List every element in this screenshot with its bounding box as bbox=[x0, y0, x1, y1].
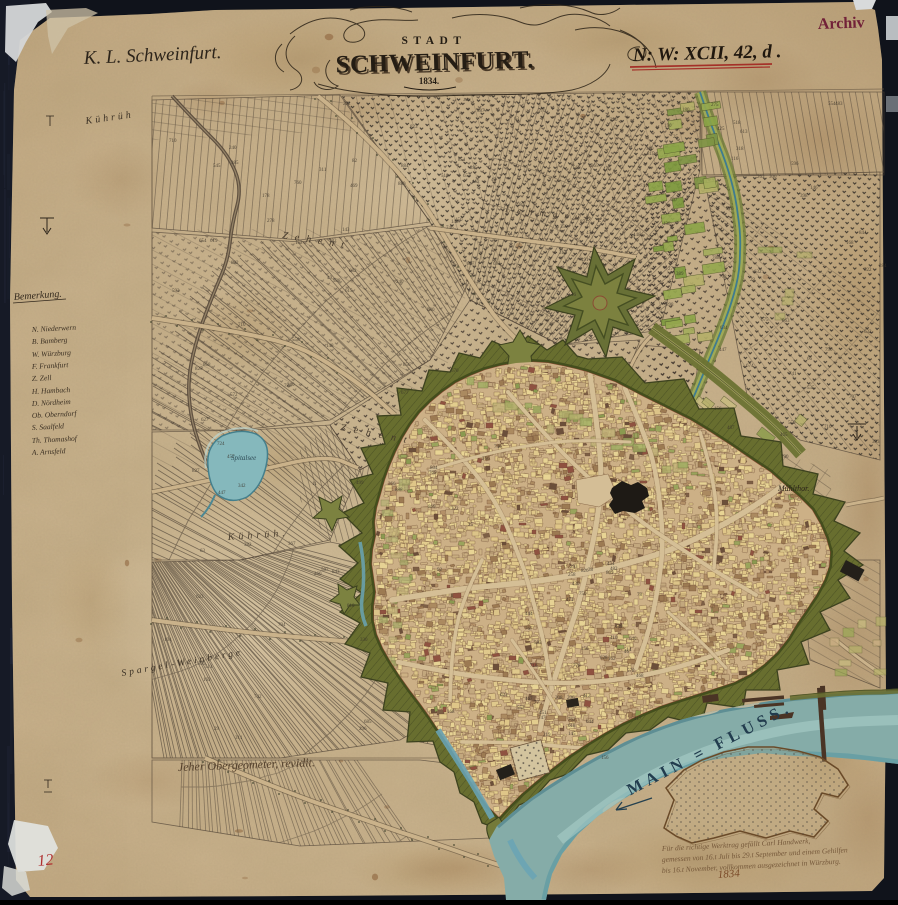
svg-text:Spitalsee: Spitalsee bbox=[231, 454, 256, 462]
svg-text:880: 880 bbox=[398, 182, 406, 187]
svg-text:680: 680 bbox=[427, 308, 435, 313]
svg-text:143: 143 bbox=[342, 228, 350, 233]
svg-text:449: 449 bbox=[615, 625, 623, 630]
svg-text:897: 897 bbox=[467, 262, 475, 267]
svg-text:263: 263 bbox=[757, 175, 765, 180]
svg-text:790: 790 bbox=[825, 348, 833, 353]
svg-text:856: 856 bbox=[403, 363, 411, 368]
svg-text:STADT: STADT bbox=[402, 35, 467, 47]
svg-text:398: 398 bbox=[800, 194, 808, 199]
svg-text:180: 180 bbox=[682, 108, 690, 113]
svg-text:469: 469 bbox=[350, 184, 358, 189]
svg-text:674: 674 bbox=[746, 364, 754, 369]
svg-text:412: 412 bbox=[583, 694, 591, 699]
svg-text:38: 38 bbox=[588, 568, 594, 573]
svg-text:293: 293 bbox=[570, 565, 578, 570]
svg-text:208: 208 bbox=[555, 696, 563, 701]
svg-text:462: 462 bbox=[472, 180, 480, 185]
svg-text:63: 63 bbox=[514, 117, 520, 122]
svg-text:741: 741 bbox=[640, 184, 648, 189]
svg-text:559: 559 bbox=[788, 421, 796, 426]
svg-text:78: 78 bbox=[430, 647, 436, 652]
svg-text:Archiv: Archiv bbox=[818, 14, 865, 33]
svg-text:618: 618 bbox=[568, 724, 576, 729]
svg-text:623: 623 bbox=[500, 693, 508, 698]
svg-text:593: 593 bbox=[172, 289, 180, 294]
svg-text:587: 587 bbox=[321, 568, 329, 573]
svg-text:572: 572 bbox=[230, 393, 238, 398]
svg-text:322: 322 bbox=[451, 507, 459, 512]
svg-text:827: 827 bbox=[192, 469, 200, 474]
svg-text:750: 750 bbox=[579, 592, 587, 597]
svg-text:387: 387 bbox=[477, 109, 485, 114]
svg-text:685: 685 bbox=[364, 720, 372, 725]
svg-text:152: 152 bbox=[295, 241, 303, 246]
svg-text:Mühlthor.: Mühlthor. bbox=[777, 484, 809, 493]
svg-text:156: 156 bbox=[714, 407, 722, 412]
svg-text:809: 809 bbox=[606, 571, 614, 576]
svg-text:417: 417 bbox=[634, 717, 642, 722]
svg-text:23: 23 bbox=[750, 278, 756, 283]
svg-text:318: 318 bbox=[736, 147, 744, 152]
svg-text:710: 710 bbox=[824, 425, 832, 430]
svg-text:553: 553 bbox=[517, 706, 525, 711]
svg-text:367: 367 bbox=[288, 542, 296, 547]
svg-text:863: 863 bbox=[782, 319, 790, 324]
svg-text:285: 285 bbox=[470, 166, 478, 171]
svg-text:296: 296 bbox=[359, 727, 367, 732]
svg-text:778: 778 bbox=[719, 275, 727, 280]
svg-text:138: 138 bbox=[663, 222, 671, 227]
svg-text:12: 12 bbox=[37, 851, 55, 870]
svg-text:156: 156 bbox=[601, 756, 609, 761]
svg-text:447: 447 bbox=[218, 491, 226, 496]
svg-text:S. Saalfeld: S. Saalfeld bbox=[32, 421, 65, 432]
svg-text:92: 92 bbox=[437, 568, 443, 573]
svg-text:545: 545 bbox=[213, 164, 221, 169]
svg-text:14: 14 bbox=[630, 235, 636, 240]
svg-text:49: 49 bbox=[327, 276, 333, 281]
svg-text:425: 425 bbox=[717, 127, 725, 132]
svg-text:854: 854 bbox=[580, 220, 588, 225]
svg-text:430: 430 bbox=[572, 582, 580, 587]
svg-text:724: 724 bbox=[217, 442, 225, 447]
svg-text:150: 150 bbox=[664, 124, 672, 129]
svg-text:101: 101 bbox=[164, 638, 172, 643]
svg-text:330: 330 bbox=[360, 638, 368, 643]
svg-text:116: 116 bbox=[731, 157, 739, 162]
svg-text:230: 230 bbox=[546, 287, 554, 292]
svg-text:168: 168 bbox=[447, 710, 455, 715]
svg-text:1834: 1834 bbox=[717, 867, 740, 881]
svg-text:393: 393 bbox=[872, 440, 880, 445]
svg-text:613: 613 bbox=[740, 130, 748, 135]
svg-text:SCHWEINFURT.: SCHWEINFURT. bbox=[335, 46, 534, 78]
svg-text:710: 710 bbox=[238, 323, 246, 328]
svg-text:760: 760 bbox=[294, 181, 302, 186]
svg-text:219: 219 bbox=[543, 733, 551, 738]
svg-text:465: 465 bbox=[780, 433, 788, 438]
svg-text:634: 634 bbox=[720, 326, 728, 331]
svg-text:583: 583 bbox=[534, 641, 542, 646]
svg-text:628: 628 bbox=[600, 656, 608, 661]
svg-text:266: 266 bbox=[482, 457, 490, 462]
svg-text:410: 410 bbox=[610, 636, 618, 641]
svg-text:284: 284 bbox=[879, 264, 887, 269]
svg-text:815: 815 bbox=[647, 152, 655, 157]
svg-text:454: 454 bbox=[586, 231, 594, 236]
svg-text:578: 578 bbox=[627, 669, 635, 674]
svg-text:769: 769 bbox=[429, 471, 437, 476]
svg-text:328: 328 bbox=[463, 98, 471, 103]
svg-text:Z. Zell: Z. Zell bbox=[32, 373, 52, 383]
svg-text:1834.: 1834. bbox=[419, 76, 439, 86]
svg-text:385: 385 bbox=[231, 161, 239, 166]
svg-text:240: 240 bbox=[396, 280, 404, 285]
svg-text:740: 740 bbox=[494, 445, 502, 450]
svg-text:N: W: XCII, 42, d .: N: W: XCII, 42, d . bbox=[632, 41, 782, 66]
svg-text:788: 788 bbox=[284, 384, 292, 389]
svg-text:499: 499 bbox=[356, 481, 364, 486]
svg-text:707: 707 bbox=[849, 395, 857, 400]
svg-text:692: 692 bbox=[493, 262, 501, 267]
svg-text:80: 80 bbox=[519, 203, 525, 208]
svg-text:710: 710 bbox=[169, 139, 177, 144]
svg-text:29: 29 bbox=[214, 727, 220, 732]
svg-text:457: 457 bbox=[227, 455, 235, 460]
svg-text:746: 746 bbox=[446, 226, 454, 231]
svg-text:747: 747 bbox=[538, 716, 546, 721]
svg-text:11: 11 bbox=[312, 482, 317, 487]
svg-text:366: 366 bbox=[388, 482, 396, 487]
svg-text:810: 810 bbox=[347, 604, 355, 609]
svg-text:644: 644 bbox=[586, 720, 594, 725]
svg-text:619: 619 bbox=[210, 239, 218, 244]
svg-text:146: 146 bbox=[810, 186, 818, 191]
svg-text:823: 823 bbox=[410, 125, 418, 130]
svg-text:25: 25 bbox=[468, 523, 474, 528]
svg-text:274: 274 bbox=[668, 267, 676, 272]
svg-text:46: 46 bbox=[624, 650, 630, 655]
svg-text:145: 145 bbox=[568, 732, 576, 737]
svg-text:742: 742 bbox=[254, 695, 262, 700]
svg-text:374: 374 bbox=[505, 232, 513, 237]
svg-text:260: 260 bbox=[314, 572, 322, 577]
svg-text:682: 682 bbox=[349, 269, 357, 274]
svg-text:597: 597 bbox=[670, 198, 678, 203]
svg-text:535: 535 bbox=[807, 386, 815, 391]
svg-text:63: 63 bbox=[200, 549, 206, 554]
svg-text:275: 275 bbox=[711, 103, 719, 108]
svg-text:483: 483 bbox=[835, 102, 843, 107]
svg-text:382: 382 bbox=[329, 239, 337, 244]
svg-text:313: 313 bbox=[559, 251, 567, 256]
svg-text:444: 444 bbox=[525, 612, 533, 617]
svg-text:168: 168 bbox=[846, 241, 854, 246]
svg-text:300: 300 bbox=[769, 175, 777, 180]
svg-text:652: 652 bbox=[463, 174, 471, 179]
svg-text:778: 778 bbox=[573, 664, 581, 669]
svg-text:82: 82 bbox=[352, 159, 358, 164]
svg-text:468: 468 bbox=[636, 674, 644, 679]
svg-text:677: 677 bbox=[401, 391, 409, 396]
svg-text:A. Arnsfeld: A. Arnsfeld bbox=[31, 446, 66, 457]
svg-text:794: 794 bbox=[278, 623, 286, 628]
svg-text:487: 487 bbox=[727, 426, 735, 431]
svg-text:568: 568 bbox=[573, 166, 581, 171]
svg-text:788: 788 bbox=[712, 256, 720, 261]
svg-text:77: 77 bbox=[534, 701, 540, 706]
svg-text:311: 311 bbox=[319, 168, 327, 173]
svg-text:511: 511 bbox=[205, 665, 213, 670]
svg-text:390: 390 bbox=[610, 118, 618, 123]
svg-text:827: 827 bbox=[195, 367, 203, 372]
svg-text:526: 526 bbox=[726, 207, 734, 212]
svg-text:46: 46 bbox=[571, 293, 577, 298]
svg-text:888: 888 bbox=[395, 488, 403, 493]
svg-text:447: 447 bbox=[719, 348, 727, 353]
svg-text:142: 142 bbox=[451, 220, 459, 225]
svg-text:25: 25 bbox=[673, 135, 679, 140]
svg-text:292: 292 bbox=[343, 102, 351, 107]
svg-text:762: 762 bbox=[568, 718, 576, 723]
svg-text:632: 632 bbox=[864, 330, 872, 335]
svg-text:350: 350 bbox=[560, 225, 568, 230]
svg-text:790: 790 bbox=[781, 455, 789, 460]
svg-text:162: 162 bbox=[608, 657, 616, 662]
svg-text:654: 654 bbox=[199, 239, 207, 244]
svg-text:640: 640 bbox=[629, 637, 637, 642]
svg-text:49: 49 bbox=[491, 178, 497, 183]
svg-text:B. Bamberg: B. Bamberg bbox=[32, 335, 68, 346]
svg-text:596: 596 bbox=[791, 162, 799, 167]
svg-text:892: 892 bbox=[231, 261, 239, 266]
svg-text:518: 518 bbox=[441, 174, 449, 179]
svg-text:588: 588 bbox=[333, 279, 341, 284]
svg-text:278: 278 bbox=[267, 219, 275, 224]
svg-text:156: 156 bbox=[581, 647, 589, 652]
svg-text:522: 522 bbox=[864, 268, 872, 273]
svg-text:843: 843 bbox=[332, 570, 340, 575]
svg-text:471: 471 bbox=[566, 598, 574, 603]
svg-text:869: 869 bbox=[428, 505, 436, 510]
svg-text:716: 716 bbox=[530, 664, 538, 669]
svg-text:491: 491 bbox=[581, 258, 589, 263]
svg-text:844: 844 bbox=[859, 231, 867, 236]
svg-text:258: 258 bbox=[568, 573, 576, 578]
svg-text:884: 884 bbox=[401, 164, 409, 169]
svg-text:389: 389 bbox=[676, 272, 684, 277]
svg-text:632: 632 bbox=[754, 270, 762, 275]
svg-text:558: 558 bbox=[292, 338, 300, 343]
svg-text:741: 741 bbox=[789, 372, 797, 377]
svg-text:365: 365 bbox=[591, 164, 599, 169]
svg-text:342: 342 bbox=[238, 484, 246, 489]
svg-text:311: 311 bbox=[235, 736, 243, 741]
svg-text:454: 454 bbox=[607, 562, 615, 567]
svg-text:78: 78 bbox=[637, 593, 643, 598]
svg-text:163: 163 bbox=[203, 678, 211, 683]
svg-text:570: 570 bbox=[538, 109, 546, 114]
svg-text:66: 66 bbox=[807, 357, 813, 362]
svg-text:868: 868 bbox=[203, 363, 211, 368]
svg-text:670: 670 bbox=[451, 369, 459, 374]
svg-text:675: 675 bbox=[761, 318, 769, 323]
svg-text:467: 467 bbox=[525, 697, 533, 702]
svg-text:627: 627 bbox=[201, 418, 209, 423]
svg-text:178: 178 bbox=[262, 194, 270, 199]
svg-text:148: 148 bbox=[326, 344, 334, 349]
svg-text:898: 898 bbox=[666, 303, 674, 308]
svg-text:470: 470 bbox=[603, 167, 611, 172]
svg-text:767: 767 bbox=[525, 627, 533, 632]
svg-text:615: 615 bbox=[345, 289, 353, 294]
svg-text:240: 240 bbox=[229, 146, 237, 151]
svg-text:206: 206 bbox=[567, 696, 575, 701]
svg-text:851: 851 bbox=[458, 158, 466, 163]
svg-text:623: 623 bbox=[196, 595, 204, 600]
svg-text:382: 382 bbox=[244, 543, 252, 548]
svg-text:518: 518 bbox=[733, 121, 741, 126]
